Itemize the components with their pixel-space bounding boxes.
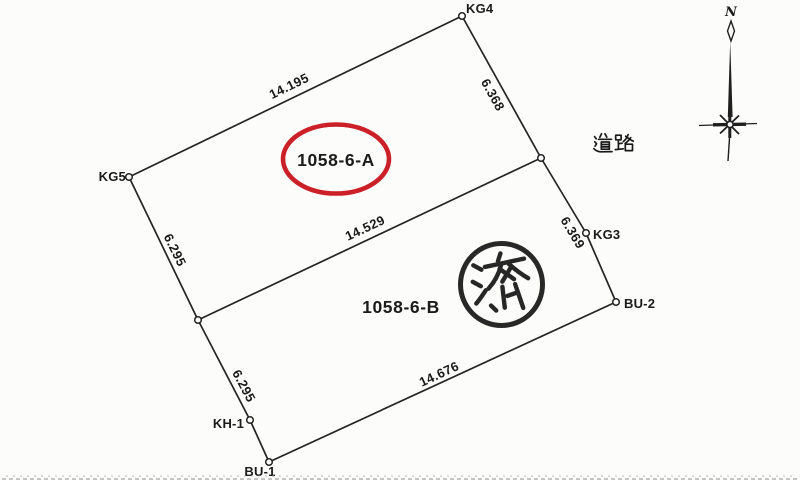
point-marker-road-corner <box>538 155 545 162</box>
point-label-bu2: BU-2 <box>624 296 655 311</box>
compass-rose: N <box>699 5 757 161</box>
point-label-kg4: KG4 <box>466 1 494 16</box>
road-label-kanji: 道路 <box>594 134 634 152</box>
scan-artifact-band <box>2 476 798 479</box>
dimension-left-lower: 6.295 <box>229 367 258 405</box>
point-marker-kg4 <box>459 13 466 20</box>
dimension-divider: 14.529 <box>343 212 388 243</box>
point-marker-kh1 <box>247 417 254 424</box>
compass-center-hub <box>727 121 733 127</box>
compass-north-label: N <box>724 5 738 20</box>
sumi-stamp: 済 <box>461 244 543 326</box>
parcel-b-label: 1058-6-B <box>362 297 440 317</box>
compass-lower-mast <box>728 138 730 161</box>
compass-mast <box>728 41 733 117</box>
point-label-kg5: KG5 <box>99 169 126 184</box>
compass-arrowhead <box>728 21 735 41</box>
point-label-kg3: KG3 <box>593 227 620 242</box>
point-marker-mid-left <box>195 317 202 324</box>
stamp-kanji-sumi <box>467 249 534 317</box>
cadastral-survey-drawing: KG4 KG5 KG3 BU-2 KH-1 BU-1 14.195 14.529… <box>0 0 800 480</box>
dimension-bottom-edge: 14.676 <box>417 358 462 389</box>
point-marker-kg5 <box>126 174 133 181</box>
outer-boundary-line <box>129 16 616 462</box>
parcel-boundary-lines <box>129 16 616 462</box>
kanji-ro <box>615 135 633 151</box>
boundary-point-markers <box>126 13 620 466</box>
dimension-top-edge: 14.195 <box>267 70 311 102</box>
survey-map-sheet: KG4 KG5 KG3 BU-2 KH-1 BU-1 14.195 14.529… <box>0 0 800 480</box>
kanji-michi <box>594 134 612 152</box>
parcel-a-label: 1058-6-A <box>297 150 375 170</box>
point-label-kh1: KH-1 <box>213 416 244 431</box>
parcel-divider-line <box>198 158 541 320</box>
point-marker-bu2 <box>613 299 620 306</box>
dimension-right-upper: 6.368 <box>478 76 508 113</box>
